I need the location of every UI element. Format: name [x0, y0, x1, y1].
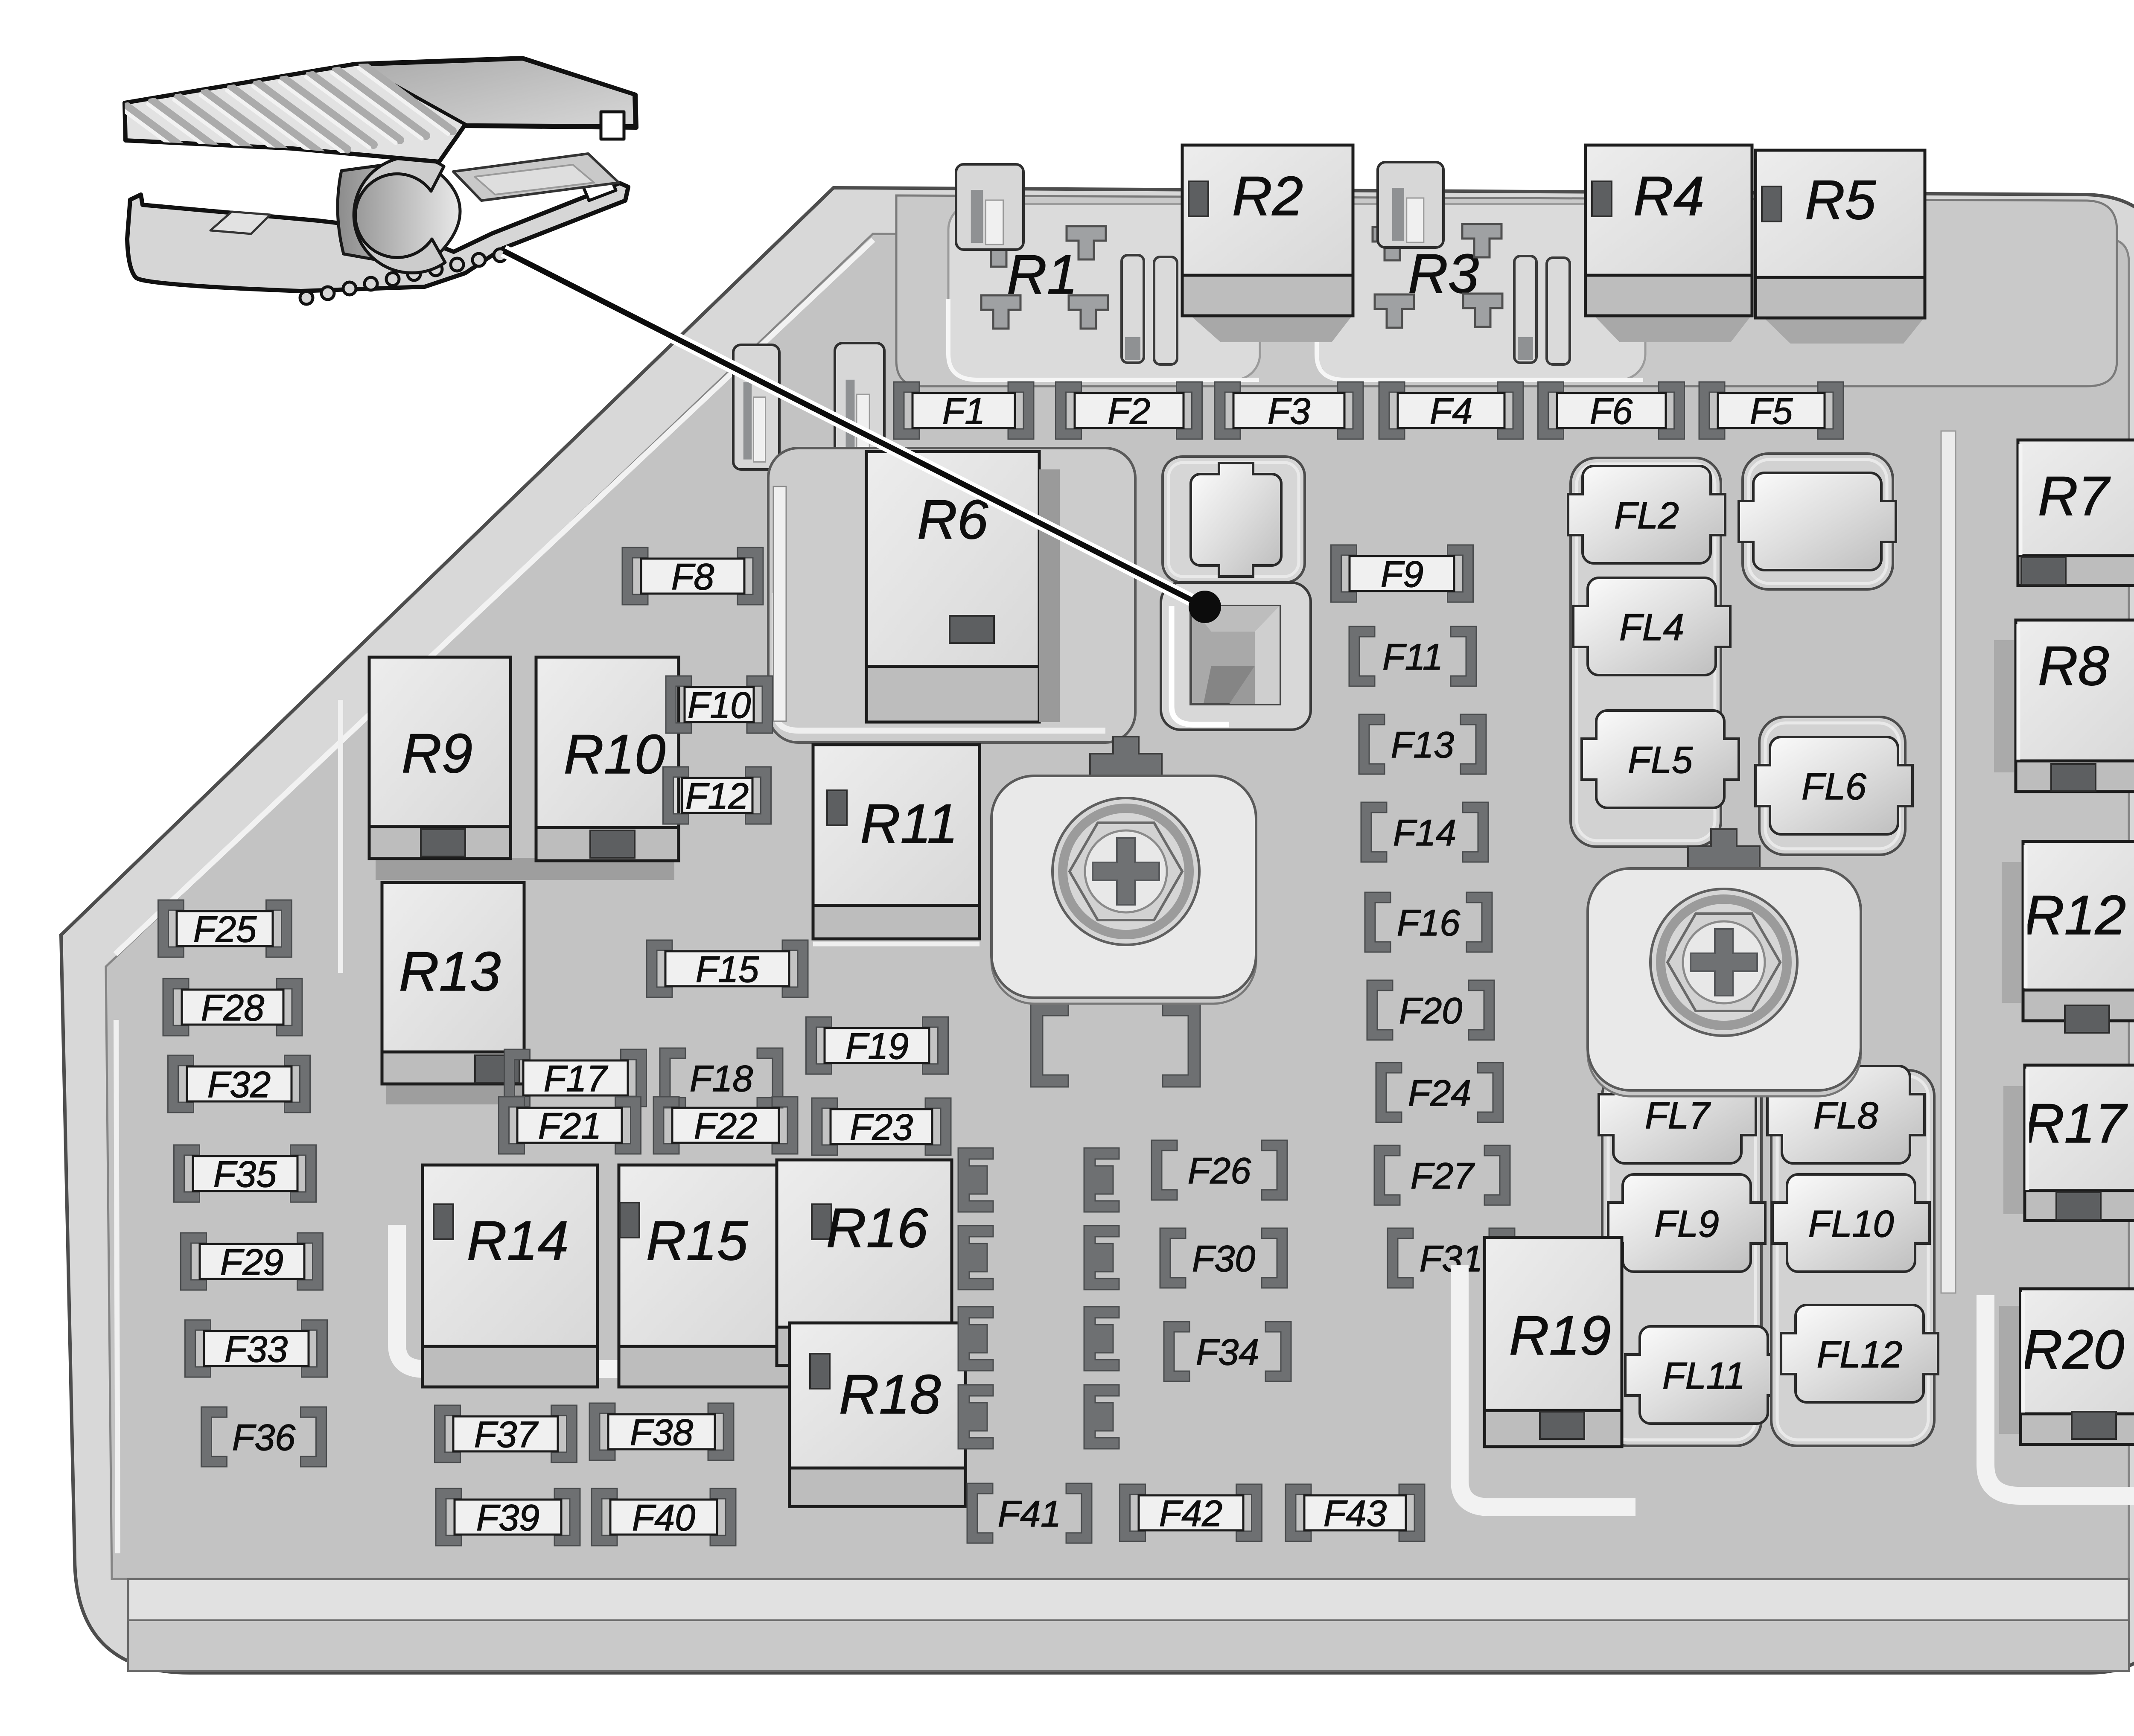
svg-text:R10: R10 [564, 723, 665, 785]
svg-text:F3: F3 [1268, 391, 1311, 432]
svg-text:F15: F15 [696, 949, 759, 990]
svg-text:F10: F10 [688, 685, 751, 726]
svg-text:F28: F28 [201, 987, 264, 1028]
svg-text:F42: F42 [1159, 1493, 1222, 1534]
svg-text:F43: F43 [1324, 1493, 1387, 1534]
svg-text:F16: F16 [1397, 903, 1460, 944]
svg-text:F1: F1 [942, 391, 985, 432]
svg-text:FL5: FL5 [1628, 739, 1693, 781]
svg-text:F17: F17 [544, 1058, 608, 1099]
svg-text:FL10: FL10 [1808, 1203, 1894, 1245]
svg-text:FL12: FL12 [1817, 1333, 1903, 1375]
svg-text:FL6: FL6 [1802, 765, 1866, 807]
svg-text:R7: R7 [2038, 465, 2111, 527]
svg-text:F29: F29 [220, 1242, 283, 1283]
svg-text:R16: R16 [826, 1197, 928, 1259]
svg-text:F8: F8 [671, 556, 714, 597]
svg-text:R18: R18 [839, 1363, 941, 1425]
svg-text:F23: F23 [850, 1107, 913, 1148]
svg-text:R17: R17 [2024, 1092, 2128, 1154]
svg-text:F26: F26 [1188, 1151, 1251, 1191]
svg-text:R20: R20 [2023, 1318, 2124, 1381]
svg-text:R15: R15 [646, 1209, 748, 1272]
svg-text:F20: F20 [1399, 990, 1462, 1031]
svg-text:FL4: FL4 [1619, 606, 1684, 648]
svg-text:F22: F22 [694, 1106, 757, 1147]
svg-text:R5: R5 [1805, 169, 1876, 231]
svg-text:R14: R14 [467, 1209, 568, 1272]
svg-text:F30: F30 [1192, 1238, 1255, 1279]
svg-text:F9: F9 [1381, 554, 1423, 595]
svg-text:F41: F41 [998, 1494, 1061, 1535]
svg-text:F4: F4 [1430, 391, 1472, 432]
svg-text:F19: F19 [845, 1026, 909, 1067]
svg-text:R13: R13 [399, 940, 501, 1002]
svg-text:F34: F34 [1196, 1332, 1259, 1373]
svg-text:F21: F21 [538, 1106, 601, 1147]
svg-text:FL7: FL7 [1645, 1094, 1711, 1136]
svg-text:F5: F5 [1750, 391, 1793, 432]
svg-text:F38: F38 [630, 1412, 693, 1453]
svg-text:F35: F35 [213, 1154, 277, 1195]
svg-text:F27: F27 [1411, 1156, 1475, 1197]
svg-text:F39: F39 [476, 1497, 539, 1538]
svg-text:R8: R8 [2038, 635, 2109, 697]
svg-text:F40: F40 [632, 1497, 695, 1538]
svg-text:FL2: FL2 [1614, 494, 1679, 536]
svg-text:F36: F36 [232, 1417, 295, 1458]
svg-text:F12: F12 [685, 776, 749, 817]
svg-text:FL9: FL9 [1654, 1203, 1719, 1245]
svg-text:F33: F33 [224, 1329, 288, 1370]
svg-text:R2: R2 [1232, 165, 1303, 227]
svg-text:R19: R19 [1509, 1304, 1611, 1366]
svg-text:F6: F6 [1590, 391, 1633, 432]
svg-text:F32: F32 [207, 1064, 271, 1105]
svg-text:R9: R9 [402, 722, 472, 784]
svg-text:F11: F11 [1382, 637, 1443, 678]
svg-text:F24: F24 [1408, 1073, 1471, 1114]
svg-text:F37: F37 [474, 1414, 539, 1455]
svg-text:F2: F2 [1108, 391, 1150, 432]
svg-text:R4: R4 [1633, 165, 1704, 227]
svg-text:R12: R12 [2024, 884, 2126, 946]
svg-text:F14: F14 [1393, 813, 1456, 853]
svg-text:FL11: FL11 [1662, 1354, 1745, 1397]
svg-text:R11: R11 [860, 792, 958, 855]
svg-text:FL8: FL8 [1813, 1094, 1878, 1136]
svg-text:F25: F25 [193, 909, 257, 950]
svg-text:F18: F18 [690, 1058, 753, 1099]
svg-text:F13: F13 [1391, 725, 1454, 766]
